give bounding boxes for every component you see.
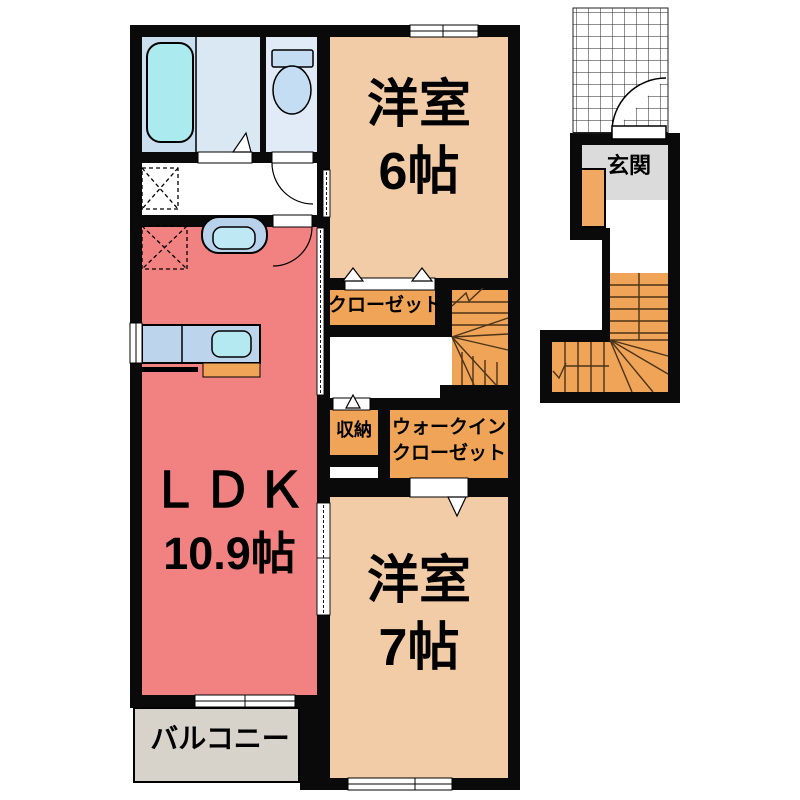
wall (508, 25, 520, 790)
wall (668, 133, 680, 403)
label-western-room-6: 洋室 6帖 (330, 72, 508, 205)
label-walk-in-closet: ウォークイン クローゼット (388, 415, 510, 466)
label-storage: 収納 (330, 420, 378, 442)
wall (130, 25, 142, 708)
room-name: ＬＤＫ (142, 462, 317, 521)
room-ldk (142, 227, 317, 695)
wall (330, 455, 390, 467)
wall (570, 133, 582, 240)
label-ldk: ＬＤＫ 10.9帖 (142, 462, 317, 581)
wall (300, 707, 330, 790)
label-balcony: バルコニー (141, 722, 299, 756)
room-toilet (266, 37, 317, 152)
wall (317, 170, 323, 217)
stairs-main (452, 290, 508, 385)
room-hallway (142, 163, 317, 215)
wall (602, 240, 610, 342)
room-size: 6帖 (330, 139, 508, 206)
wall (570, 228, 610, 240)
wall (570, 133, 680, 145)
wall (130, 695, 330, 707)
wall (330, 478, 508, 497)
label-closet: クローゼット (328, 295, 438, 318)
wall (330, 325, 447, 337)
wall (317, 37, 330, 170)
label-entrance: 玄関 (596, 153, 662, 179)
room-size: 7帖 (330, 615, 508, 682)
label-western-room-7: 洋室 7帖 (330, 548, 508, 681)
entrance-door-arc (612, 78, 666, 132)
room-bathroom-tub-area (142, 37, 197, 152)
wall (440, 385, 508, 410)
wall (317, 778, 520, 790)
stairs-right-lower (552, 342, 668, 392)
wall (330, 278, 508, 290)
wall (540, 392, 680, 403)
wall (317, 615, 330, 695)
porch-hatch (573, 8, 668, 133)
room-name: 洋室 (330, 72, 508, 139)
wall (317, 217, 330, 228)
stairs-right-upper (610, 273, 668, 342)
wall (130, 215, 330, 227)
wall (130, 25, 520, 37)
wall (260, 37, 266, 152)
room-name: 洋室 (330, 548, 508, 615)
room-size: 10.9帖 (142, 527, 317, 581)
floor-plan: 洋室 6帖 クローゼット ＬＤＫ 10.9帖 収納 ウォークイン クローゼット … (0, 0, 800, 800)
wall (317, 395, 330, 503)
room-bathroom-shower-area (197, 37, 260, 152)
wall (317, 398, 440, 410)
room-inner-hall (330, 337, 452, 398)
wall (142, 152, 317, 163)
